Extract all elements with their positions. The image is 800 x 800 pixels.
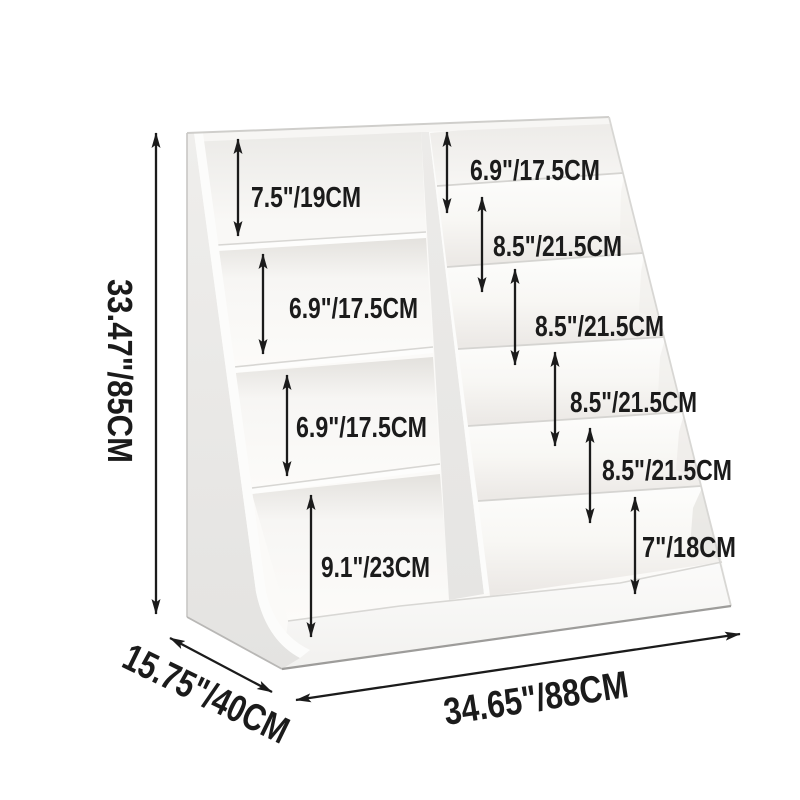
svg-text:7.5"/19CM: 7.5"/19CM <box>251 182 361 214</box>
svg-text:7"/18CM: 7"/18CM <box>642 532 736 564</box>
svg-text:8.5"/21.5CM: 8.5"/21.5CM <box>602 455 732 487</box>
svg-text:8.5"/21.5CM: 8.5"/21.5CM <box>493 231 622 263</box>
svg-text:6.9"/17.5CM: 6.9"/17.5CM <box>296 412 427 444</box>
svg-text:8.5"/21.5CM: 8.5"/21.5CM <box>535 311 664 343</box>
svg-text:6.9"/17.5CM: 6.9"/17.5CM <box>470 155 600 187</box>
svg-text:6.9"/17.5CM: 6.9"/17.5CM <box>289 293 418 325</box>
svg-text:33.47"/85CM: 33.47"/85CM <box>100 279 139 463</box>
svg-text:8.5"/21.5CM: 8.5"/21.5CM <box>570 387 697 419</box>
svg-text:9.1"/23CM: 9.1"/23CM <box>321 552 430 584</box>
